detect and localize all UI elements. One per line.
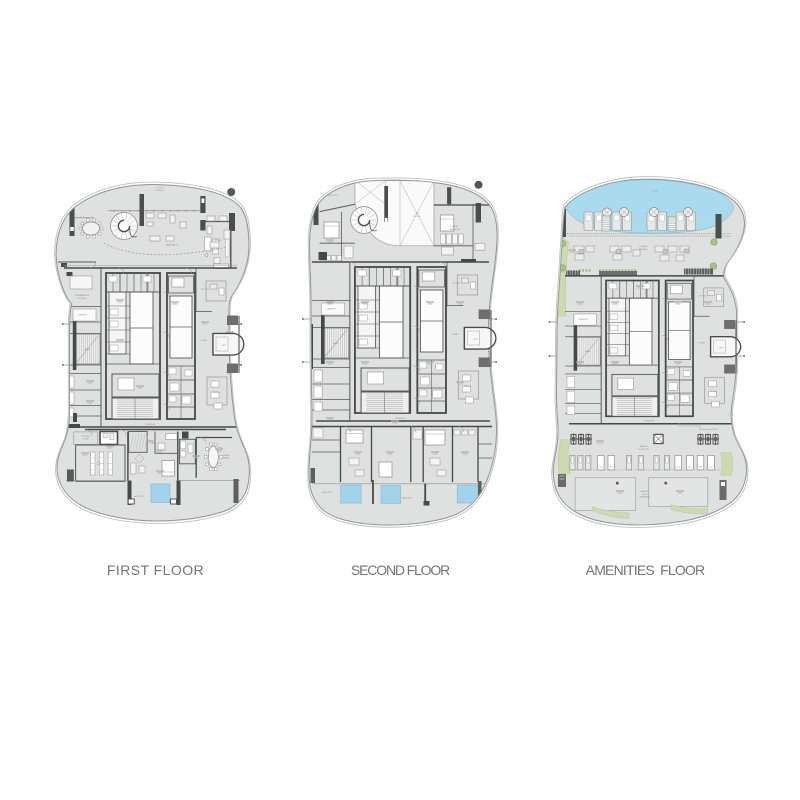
svg-text:SITTING: SITTING: [201, 289, 209, 291]
svg-text:HEALTH: HEALTH: [640, 445, 648, 448]
svg-text:BELOW: BELOW: [413, 216, 420, 218]
svg-text:MAIN SALON: MAIN SALON: [166, 244, 179, 247]
svg-text:STAIR: STAIR: [333, 342, 339, 345]
svg-text:OFFICE: OFFICE: [710, 391, 718, 393]
svg-text:BEDROOM: BEDROOM: [450, 229, 461, 231]
svg-text:TERRACE: TERRACE: [155, 189, 165, 192]
svg-text:. . . . . . .: . . . . . . .: [725, 520, 734, 523]
svg-text:CHANGING: CHANGING: [639, 496, 650, 499]
svg-text:LAUNDRY: LAUNDRY: [327, 308, 337, 311]
svg-text:LAUNDRY: LAUNDRY: [78, 314, 88, 317]
svg-text:SITTING: SITTING: [699, 295, 707, 297]
svg-text:LAUNDRY: LAUNDRY: [579, 318, 589, 321]
svg-text:AMENITIES FLOOR: AMENITIES FLOOR: [586, 562, 705, 578]
svg-text:STAIR: STAIR: [84, 348, 90, 351]
svg-text:CORRIDOR: CORRIDOR: [644, 421, 655, 423]
svg-text:BALCONY: BALCONY: [322, 491, 332, 494]
svg-text:BALCONY: BALCONY: [134, 495, 144, 498]
svg-text:BALCONY: BALCONY: [328, 194, 338, 197]
svg-text:STAIR: STAIR: [585, 350, 591, 353]
svg-text:CLUB: CLUB: [642, 494, 648, 496]
svg-text:ROOM: ROOM: [83, 439, 89, 441]
svg-text:SECOND FLOOR: SECOND FLOOR: [351, 562, 450, 578]
svg-text:DINING: DINING: [223, 458, 230, 460]
svg-text:CORRIDOR: CORRIDOR: [395, 418, 406, 420]
svg-text:LOBBY: LOBBY: [452, 334, 459, 336]
svg-text:HEALTH: HEALTH: [641, 490, 649, 493]
svg-text:OFFICE: OFFICE: [464, 386, 472, 388]
svg-text:SITTING: SITTING: [452, 283, 460, 285]
svg-text:KITCHEN: KITCHEN: [78, 298, 87, 300]
svg-text:SEATING: SEATING: [639, 248, 648, 251]
svg-text:CORRIDOR: CORRIDOR: [145, 424, 156, 426]
svg-text:LOUNGE: LOUNGE: [639, 246, 648, 248]
svg-text:BALCONY: BALCONY: [402, 497, 412, 500]
svg-text:FIRST FLOOR: FIRST FLOOR: [107, 562, 204, 578]
svg-text:OFFICE: OFFICE: [213, 392, 221, 394]
svg-text:PREPARATION: PREPARATION: [75, 294, 90, 297]
svg-text:SITTING: SITTING: [214, 240, 222, 242]
svg-text:CLUB GYM: CLUB GYM: [638, 449, 649, 451]
svg-text:LOBBY: LOBBY: [201, 340, 208, 342]
svg-text:GUEST: GUEST: [452, 226, 460, 228]
svg-text:LOBBY: LOBBY: [699, 343, 706, 345]
svg-text:POOL: POOL: [652, 191, 658, 193]
